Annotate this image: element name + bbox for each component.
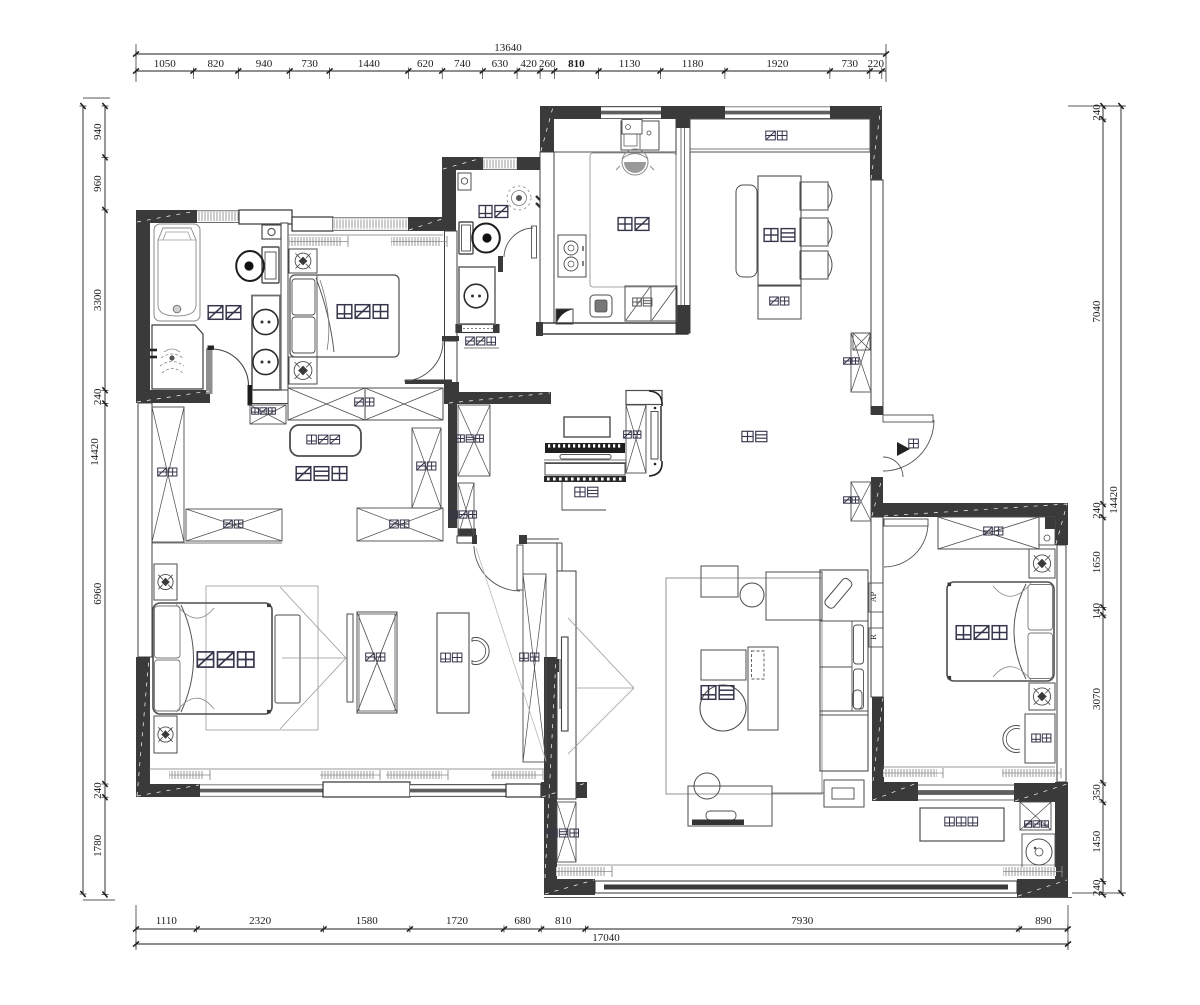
svg-text:940: 940 (256, 58, 273, 70)
svg-text:730: 730 (842, 58, 859, 70)
svg-text:1580: 1580 (356, 915, 379, 927)
svg-text:6960: 6960 (92, 582, 104, 605)
svg-text:1780: 1780 (92, 834, 104, 857)
svg-text:1440: 1440 (358, 58, 381, 70)
svg-text:240: 240 (1091, 502, 1103, 519)
svg-text:620: 620 (417, 58, 434, 70)
svg-text:260: 260 (539, 58, 556, 70)
svg-text:220: 220 (868, 58, 885, 70)
svg-text:240: 240 (1091, 104, 1103, 121)
svg-text:730: 730 (301, 58, 318, 70)
svg-text:1920: 1920 (766, 58, 789, 70)
svg-text:2320: 2320 (249, 915, 272, 927)
svg-text:140: 140 (1091, 602, 1103, 619)
svg-text:740: 740 (454, 58, 471, 70)
svg-text:240: 240 (92, 388, 104, 405)
svg-text:1180: 1180 (682, 58, 704, 70)
svg-text:AP: AP (869, 591, 878, 602)
svg-text:14420: 14420 (89, 438, 101, 466)
svg-text:R: R (869, 634, 878, 640)
svg-text:810: 810 (568, 58, 585, 70)
svg-text:890: 890 (1035, 915, 1052, 927)
svg-text:1130: 1130 (619, 58, 641, 70)
svg-text:3070: 3070 (1091, 688, 1103, 711)
svg-text:1110: 1110 (156, 915, 178, 927)
svg-text:1050: 1050 (154, 58, 177, 70)
svg-text:240: 240 (92, 782, 104, 799)
svg-text:810: 810 (555, 915, 572, 927)
svg-text:630: 630 (492, 58, 509, 70)
svg-text:240: 240 (1091, 879, 1103, 896)
svg-text:7040: 7040 (1091, 300, 1103, 323)
svg-text:17040: 17040 (592, 932, 620, 944)
svg-text:350: 350 (1091, 784, 1103, 801)
svg-text:940: 940 (92, 123, 104, 140)
svg-text:680: 680 (514, 915, 531, 927)
svg-text:14420: 14420 (1108, 486, 1120, 514)
svg-text:420: 420 (520, 58, 537, 70)
svg-text:1450: 1450 (1091, 830, 1103, 853)
svg-text:820: 820 (208, 58, 225, 70)
svg-text:3300: 3300 (92, 289, 104, 312)
svg-text:1720: 1720 (446, 915, 469, 927)
svg-text:7930: 7930 (791, 915, 814, 927)
svg-text:960: 960 (92, 175, 104, 192)
svg-text:13640: 13640 (494, 42, 522, 54)
svg-text:1650: 1650 (1091, 551, 1103, 574)
